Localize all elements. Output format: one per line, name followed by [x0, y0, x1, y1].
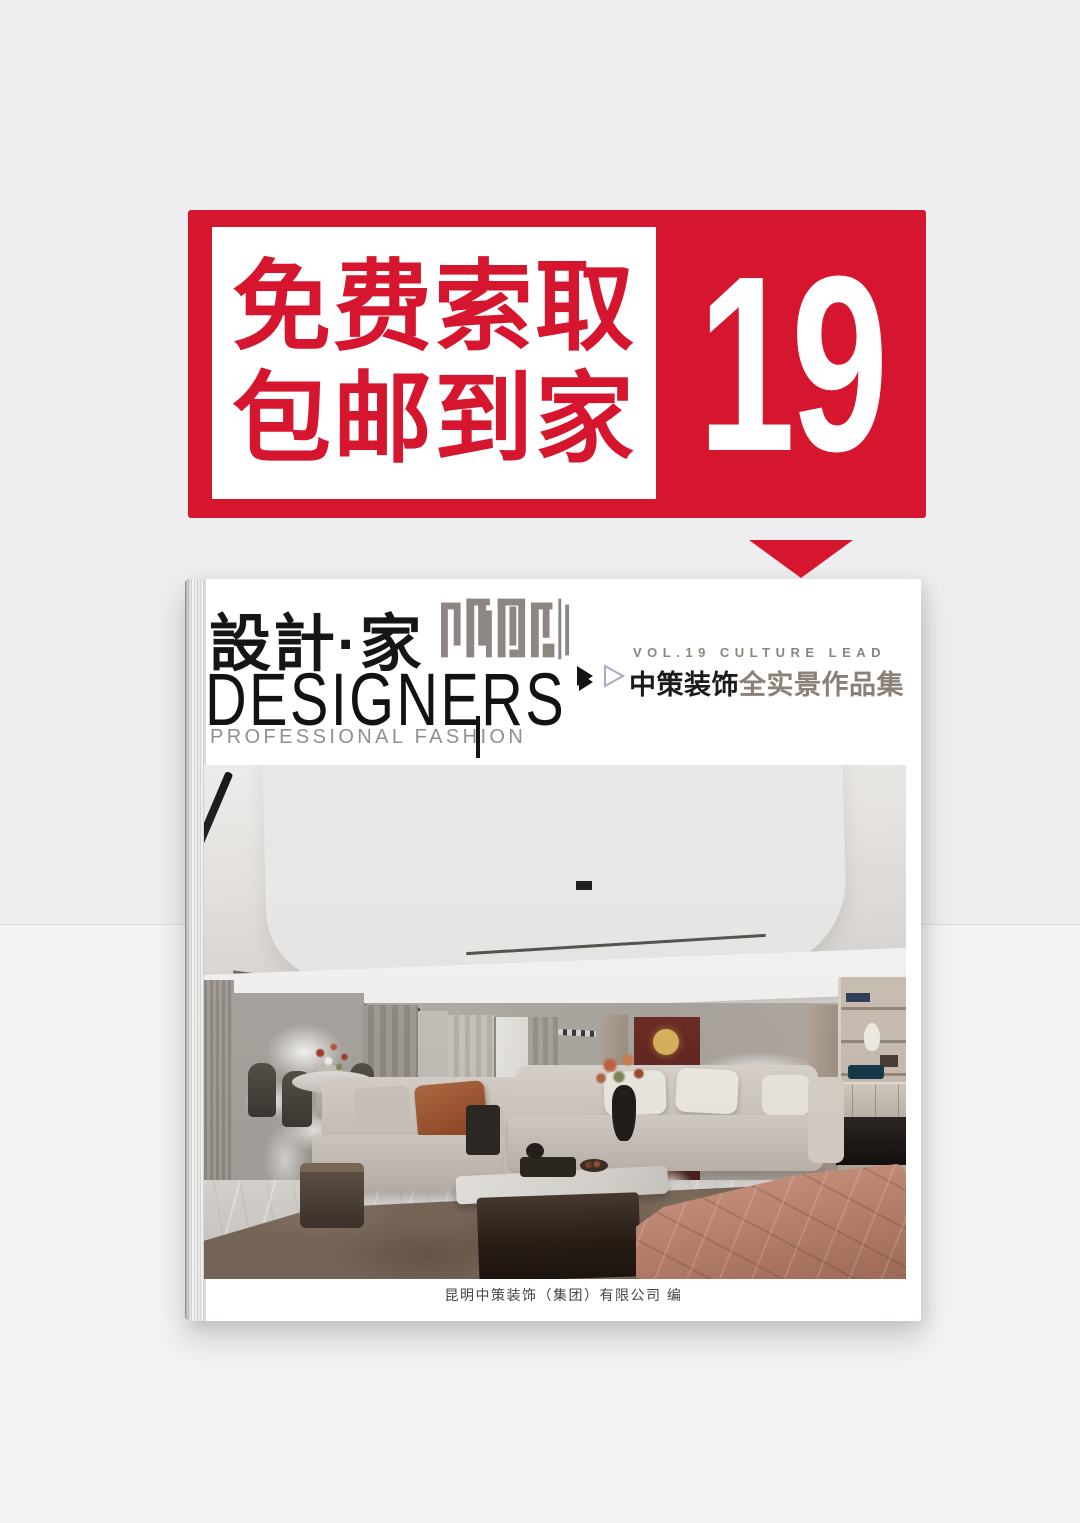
promo-banner: 免费索取 包邮到家 19 [188, 210, 926, 518]
photo-white-vase [864, 1023, 880, 1051]
edition-line: VOL.19 CULTURE LEAD [633, 645, 886, 660]
promo-line-2: 包邮到家 [232, 363, 636, 475]
cover-title-primary: 中策装饰 [629, 670, 739, 700]
volume-number-badge: 19 [656, 210, 926, 518]
photo-shelf-books [846, 993, 870, 1002]
photo-teapot [526, 1143, 544, 1159]
promo-text-box: 免费索取 包邮到家 [212, 227, 656, 499]
logo-divider-bar [476, 716, 480, 758]
down-arrow-icon [749, 540, 853, 578]
volume-number: 19 [698, 239, 884, 489]
photo-white-pillow [675, 1067, 739, 1114]
cover-photo-living-room [204, 765, 906, 1279]
photo-dining-flowers [304, 1037, 358, 1077]
photo-white-pillow [762, 1075, 810, 1115]
photo-side-table [466, 1105, 500, 1155]
photo-black-vase [612, 1085, 636, 1141]
right-arrow-icon-outline [602, 663, 626, 689]
cover-title: 中策装饰全实景作品集 [629, 663, 904, 702]
cover-title-secondary: 全实景作品集 [739, 670, 904, 700]
photo-sofa-armrest [808, 1077, 844, 1163]
photo-gray-pillow [353, 1086, 411, 1133]
book-cover: 設計·家 DESIGNERS PROFESSIONAL FASHION VOL.… [185, 579, 921, 1321]
promo-line-1: 免费索取 [232, 251, 636, 363]
photo-coffee-table-base [477, 1192, 642, 1279]
logo-seal-mark [441, 596, 573, 660]
photo-gold-moon [653, 1029, 679, 1055]
photo-fluted-panel [204, 980, 234, 1199]
publisher-line: 昆明中策装饰（集团）有限公司 编 [206, 1285, 921, 1305]
photo-fruit-plate [580, 1159, 608, 1172]
photo-flower-bouquet [592, 1047, 652, 1093]
photo-tea-tray [520, 1157, 576, 1177]
photo-ceiling-fixture [576, 881, 592, 890]
photo-ceiling-tray [260, 765, 848, 983]
photo-dark-furniture [836, 1117, 906, 1165]
photo-wood-stool [300, 1163, 364, 1228]
photo-shelf-ornament [848, 1065, 884, 1079]
book-spine-pages [185, 579, 206, 1321]
photo-dining-chair [248, 1063, 276, 1117]
right-arrow-icon-filled [577, 666, 593, 686]
